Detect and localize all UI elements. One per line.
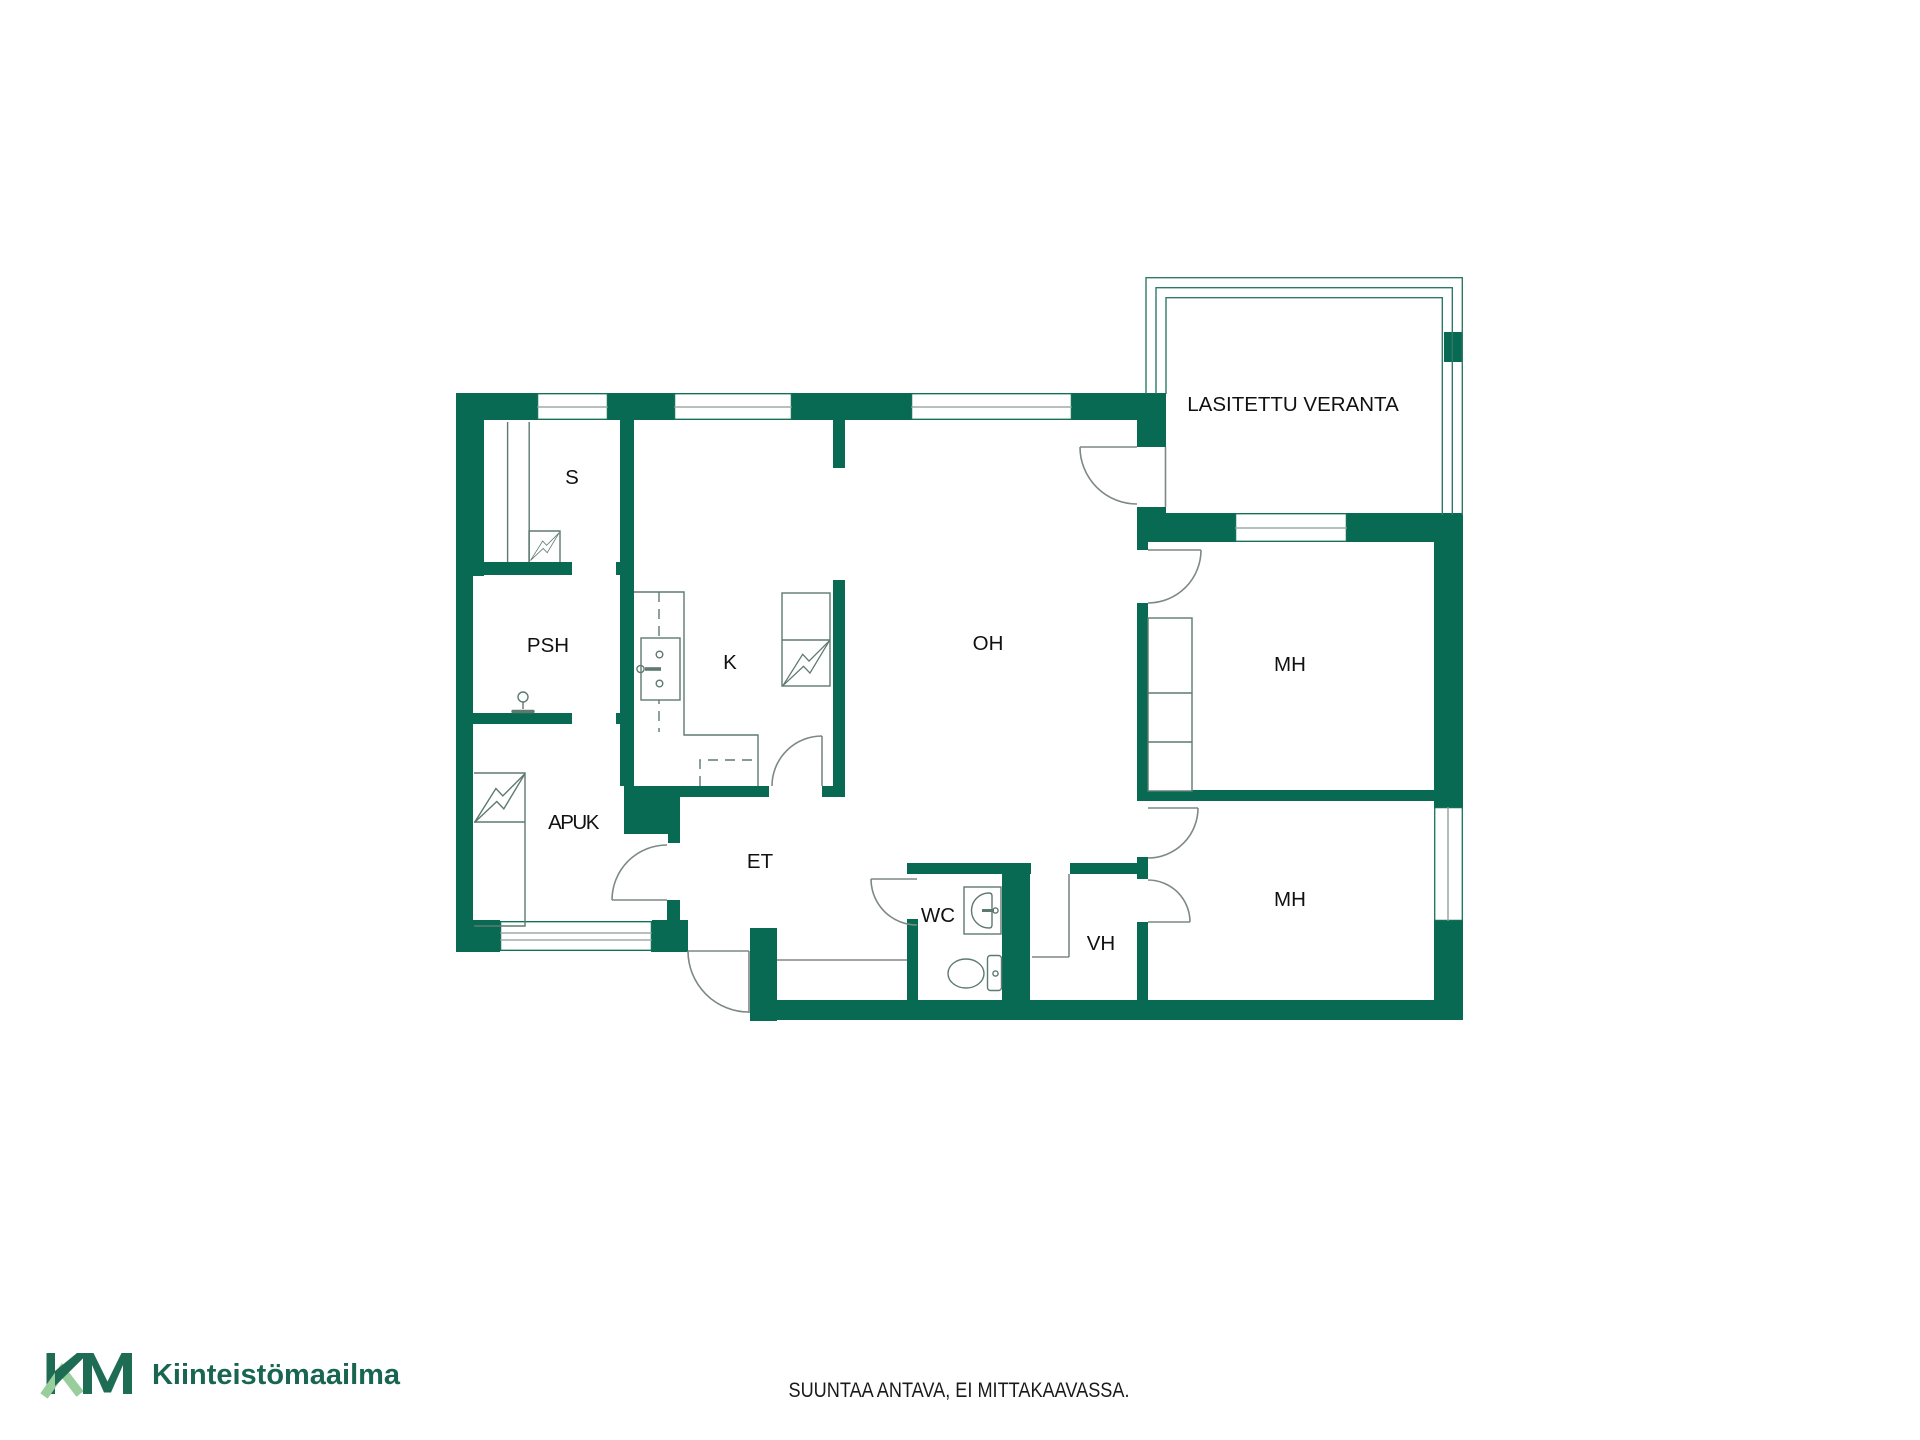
svg-text:MH: MH bbox=[1274, 653, 1306, 676]
svg-text:LASITETTU VERANTA: LASITETTU VERANTA bbox=[1187, 393, 1399, 416]
svg-text:Kiinteistömaailma: Kiinteistömaailma bbox=[152, 1359, 401, 1391]
svg-text:S: S bbox=[565, 466, 579, 489]
svg-text:K: K bbox=[723, 651, 737, 674]
svg-text:ET: ET bbox=[747, 850, 774, 873]
svg-text:MH: MH bbox=[1274, 888, 1306, 911]
svg-text:WC: WC bbox=[921, 904, 955, 927]
svg-text:VH: VH bbox=[1087, 932, 1115, 955]
svg-text:OH: OH bbox=[973, 632, 1004, 655]
svg-text:PSH: PSH bbox=[527, 634, 569, 657]
svg-text:APUK: APUK bbox=[548, 811, 600, 834]
svg-text:SUUNTAA ANTAVA, EI MITTAKAAVAS: SUUNTAA ANTAVA, EI MITTAKAAVASSA. bbox=[789, 1379, 1130, 1402]
